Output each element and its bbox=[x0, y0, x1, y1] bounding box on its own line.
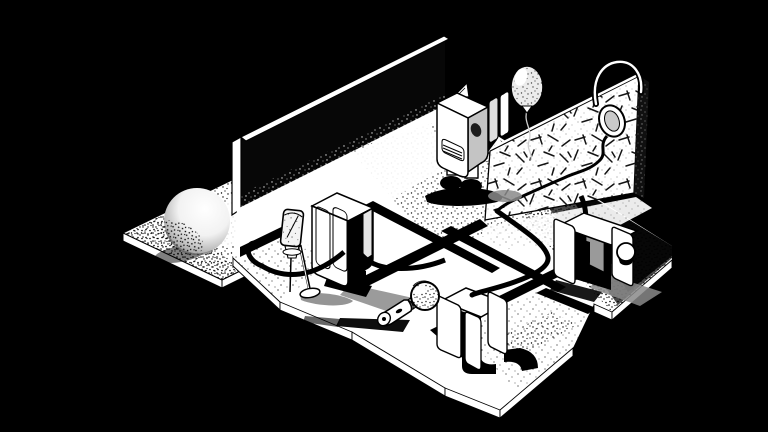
mic-body bbox=[280, 209, 304, 247]
robot-right-hand bbox=[617, 243, 635, 265]
illustration-stage: Black-and-white stippled isometric illus… bbox=[0, 0, 768, 432]
studio-robots-illustration bbox=[0, 0, 768, 432]
